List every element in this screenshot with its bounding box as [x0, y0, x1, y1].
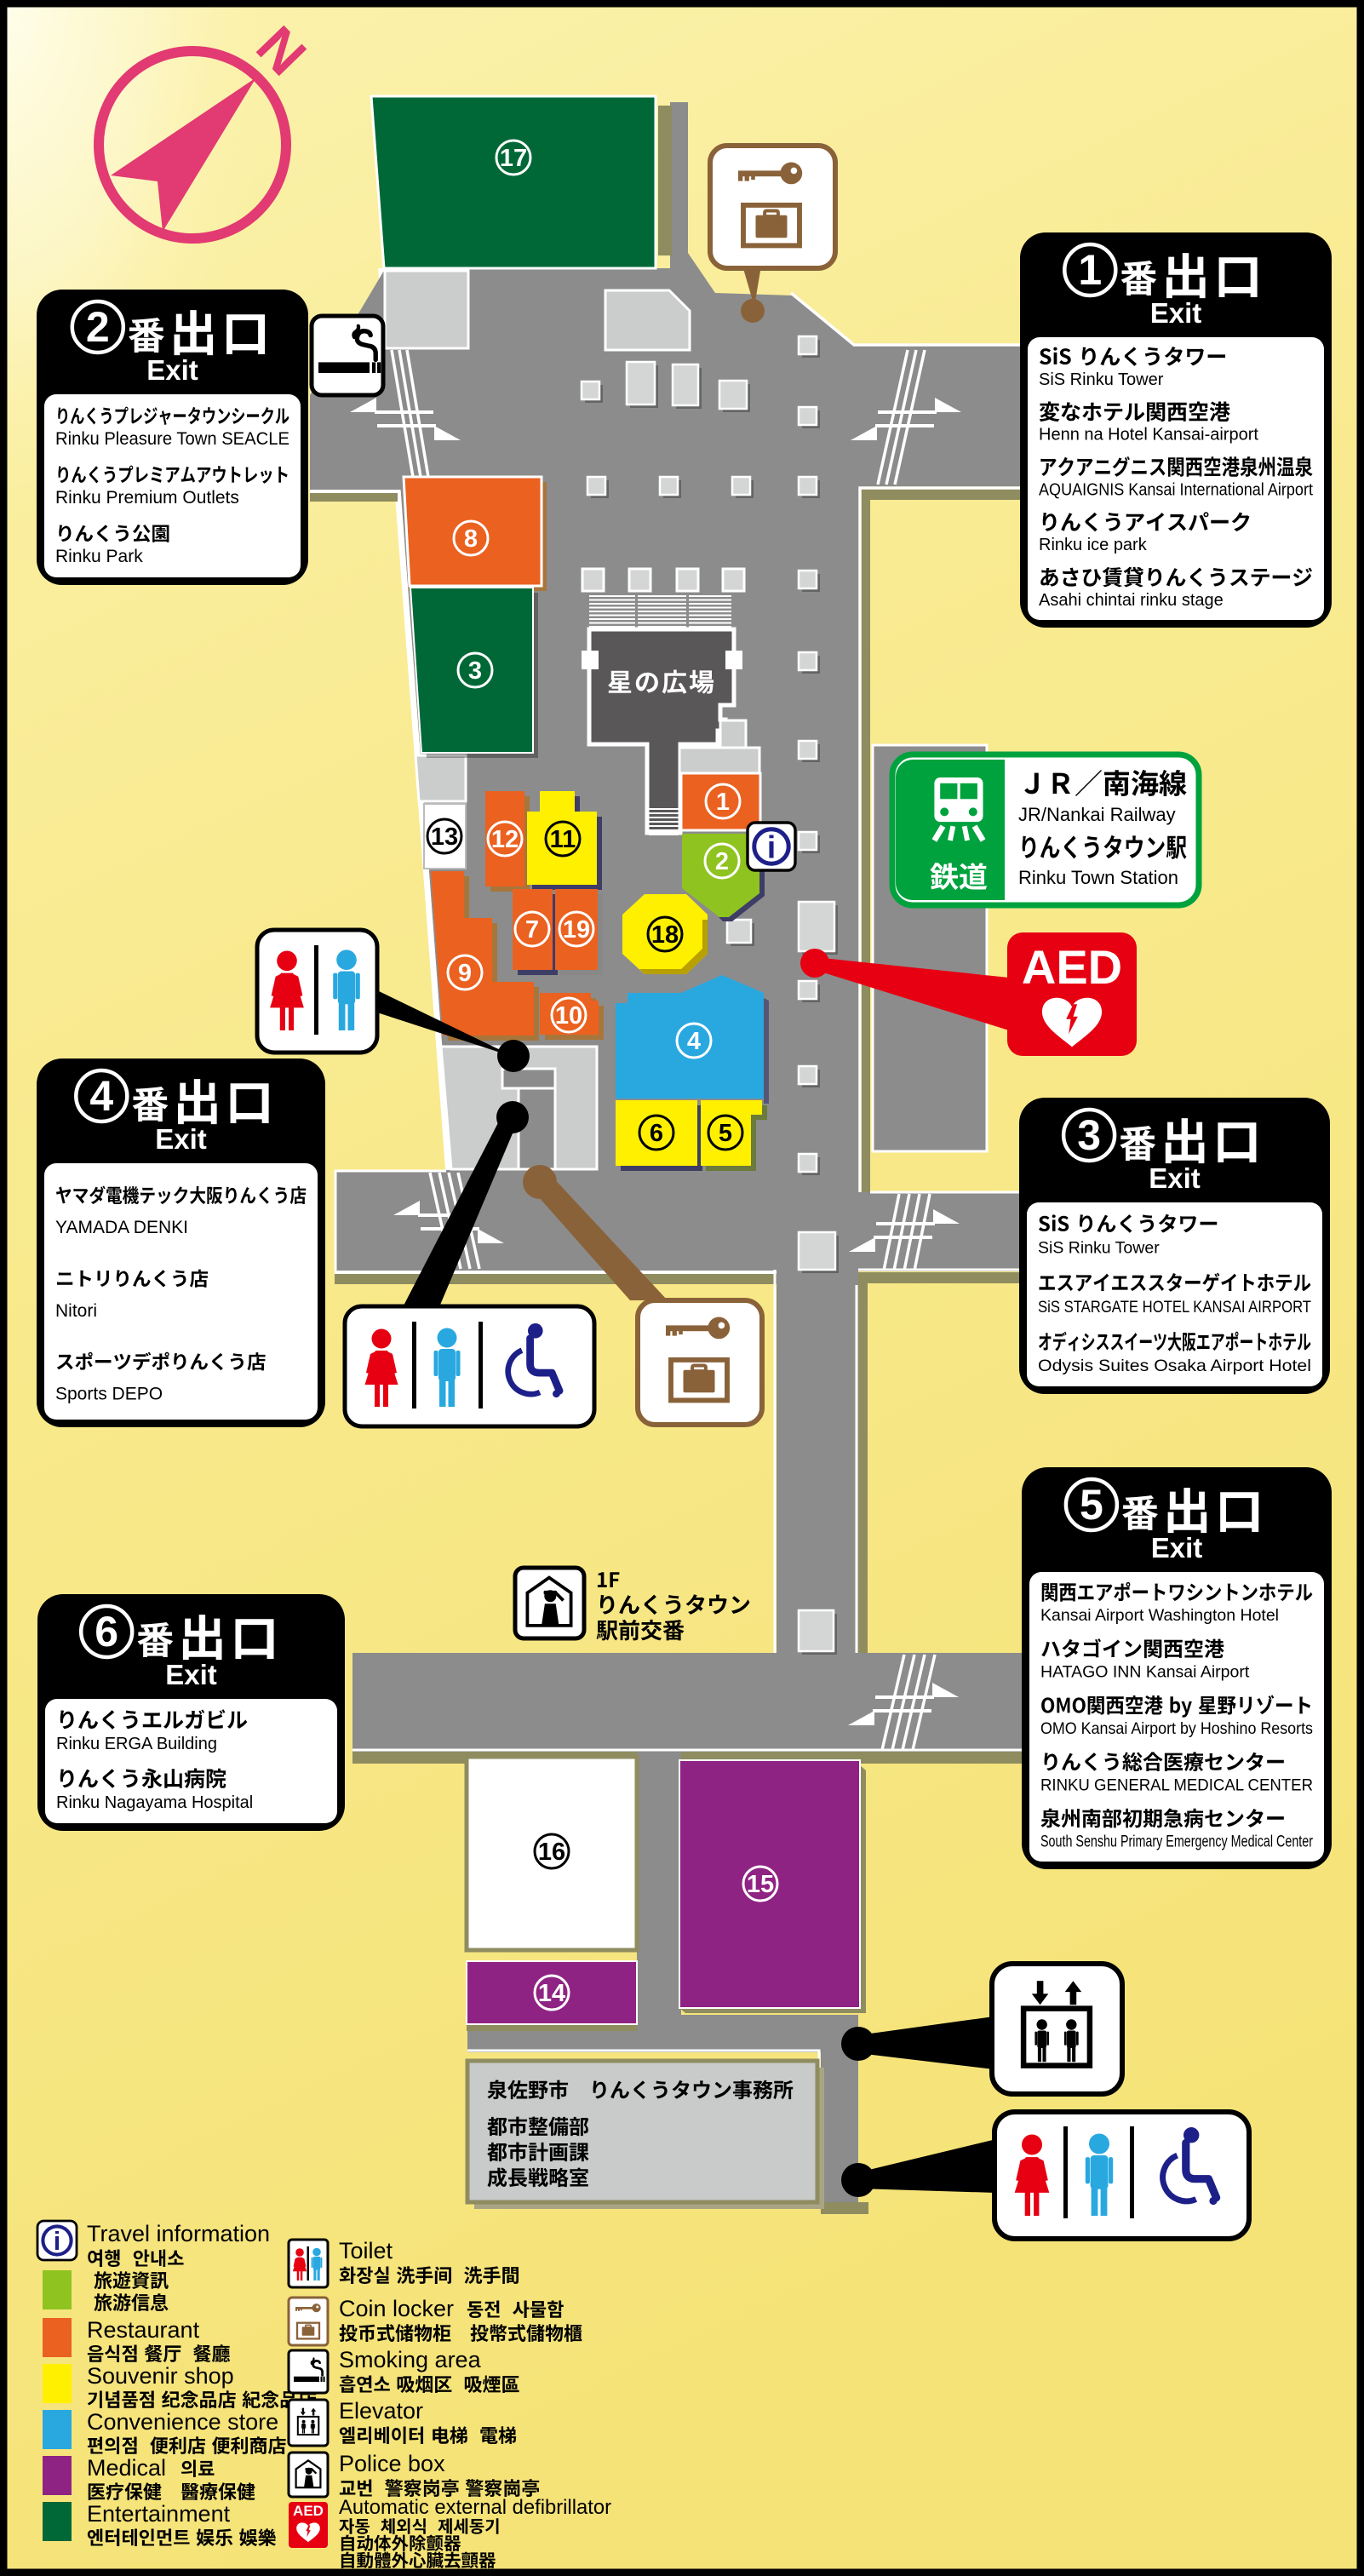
svg-text:Restaurant: Restaurant: [87, 2317, 200, 2343]
svg-text:8: 8: [464, 525, 478, 553]
svg-text:15: 15: [747, 1871, 774, 1898]
svg-text:2: 2: [715, 848, 729, 875]
svg-text:18: 18: [651, 921, 679, 949]
svg-text:AED: AED: [1022, 940, 1122, 994]
svg-text:Elevator: Elevator: [339, 2398, 423, 2424]
svg-text:3: 3: [468, 657, 482, 685]
svg-text:SiS Rinku Tower: SiS Rinku Tower: [1039, 370, 1164, 389]
svg-text:19: 19: [563, 916, 590, 944]
svg-text:Medical: Medical: [87, 2455, 166, 2481]
svg-text:Rinku Pleasure Town SEACLE: Rinku Pleasure Town SEACLE: [55, 429, 289, 449]
svg-text:10: 10: [555, 1002, 582, 1030]
svg-text:16: 16: [538, 1839, 565, 1866]
svg-text:2: 2: [86, 303, 110, 351]
svg-text:1: 1: [1078, 246, 1102, 294]
svg-text:Rinku ice park: Rinku ice park: [1039, 536, 1148, 554]
svg-text:Rinku Nagayama Hospital: Rinku Nagayama Hospital: [56, 1793, 253, 1812]
svg-text:Asahi chintai rinku stage: Asahi chintai rinku stage: [1039, 591, 1224, 610]
svg-text:Souvenir shop: Souvenir shop: [87, 2363, 234, 2389]
svg-text:5: 5: [1080, 1481, 1103, 1529]
svg-text:1: 1: [716, 789, 730, 816]
svg-text:Nitori: Nitori: [55, 1301, 97, 1321]
svg-text:Kansai Airport Washington Hote: Kansai Airport Washington Hotel: [1040, 1606, 1279, 1625]
svg-text:Rinku Premium Outlets: Rinku Premium Outlets: [55, 488, 239, 508]
svg-text:Odysis Suites Osaka Airport Ho: Odysis Suites Osaka Airport Hotel: [1038, 1357, 1311, 1375]
svg-text:12: 12: [491, 826, 519, 853]
svg-text:9: 9: [458, 960, 472, 987]
svg-text:JR/Nankai Railway: JR/Nankai Railway: [1018, 804, 1176, 825]
svg-text:Automatic external defibrillat: Automatic external defibrillator: [339, 2496, 611, 2519]
svg-text:5: 5: [719, 1120, 732, 1147]
svg-text:17: 17: [500, 145, 527, 172]
svg-text:Exit: Exit: [155, 1123, 207, 1155]
svg-text:i: i: [54, 2227, 60, 2256]
svg-text:6: 6: [650, 1120, 663, 1147]
svg-text:7: 7: [525, 916, 539, 944]
svg-text:13: 13: [431, 823, 458, 851]
svg-text:i: i: [767, 829, 776, 864]
svg-text:Entertainment: Entertainment: [87, 2501, 231, 2527]
svg-text:4: 4: [89, 1072, 113, 1120]
svg-text:AQUAIGNIS Kansai International: AQUAIGNIS Kansai International Airport: [1039, 480, 1313, 499]
svg-text:3: 3: [1077, 1111, 1101, 1159]
svg-text:SiS Rinku Tower: SiS Rinku Tower: [1038, 1239, 1160, 1258]
svg-text:HATAGO INN Kansai Airport: HATAGO INN Kansai Airport: [1040, 1663, 1250, 1682]
svg-text:South Senshu Primary Emergency: South Senshu Primary Emergency Medical C…: [1040, 1833, 1313, 1851]
svg-text:6: 6: [95, 1608, 118, 1655]
svg-text:11: 11: [550, 826, 576, 853]
svg-text:Travel information: Travel information: [87, 2221, 270, 2246]
svg-text:Coin locker: Coin locker: [339, 2296, 454, 2321]
svg-text:Rinku Park: Rinku Park: [55, 547, 143, 566]
svg-text:Exit: Exit: [1149, 1162, 1201, 1194]
svg-text:SiS STARGATE HOTEL KANSAI AIRP: SiS STARGATE HOTEL KANSAI AIRPORT: [1038, 1298, 1311, 1317]
svg-text:RINKU GENERAL MEDICAL CENTER: RINKU GENERAL MEDICAL CENTER: [1040, 1776, 1313, 1794]
svg-text:Toilet: Toilet: [339, 2238, 393, 2263]
svg-text:AED: AED: [293, 2503, 324, 2519]
svg-text:YAMADA DENKI: YAMADA DENKI: [55, 1218, 188, 1237]
svg-text:Sports DEPO: Sports DEPO: [55, 1385, 163, 1404]
svg-text:4: 4: [687, 1028, 701, 1055]
svg-text:Exit: Exit: [1150, 297, 1202, 329]
svg-text:Police box: Police box: [339, 2451, 445, 2476]
svg-text:Henn na Hotel Kansai-airport: Henn na Hotel Kansai-airport: [1039, 426, 1258, 445]
svg-text:OMO Kansai Airport by Hoshino: OMO Kansai Airport by Hoshino Resorts: [1040, 1719, 1313, 1738]
svg-text:Convenience store: Convenience store: [87, 2409, 278, 2435]
svg-text:Smoking area: Smoking area: [339, 2347, 482, 2372]
svg-text:Rinku ERGA Building: Rinku ERGA Building: [56, 1735, 217, 1753]
svg-text:Exit: Exit: [165, 1659, 217, 1690]
svg-text:Rinku Town Station: Rinku Town Station: [1018, 867, 1178, 888]
svg-text:14: 14: [538, 1980, 565, 2007]
svg-text:Exit: Exit: [146, 354, 198, 386]
svg-text:Exit: Exit: [1151, 1532, 1203, 1563]
